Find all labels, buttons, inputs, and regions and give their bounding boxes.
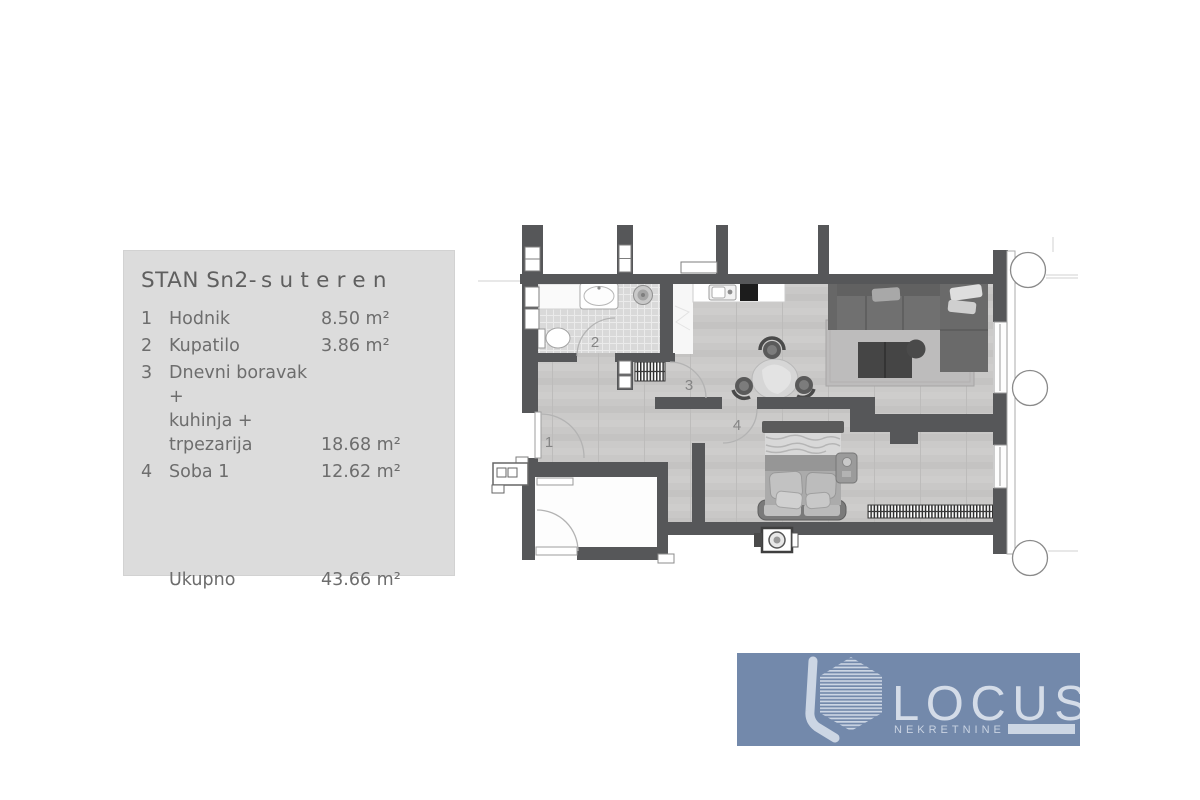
window-ledge-top	[681, 262, 717, 273]
shaft-box	[619, 376, 631, 388]
logo: LOCUS NEKRETNINE	[737, 653, 1080, 746]
boiler-tab-right	[792, 533, 798, 547]
nightstand-item	[842, 471, 851, 477]
chair-cushion	[799, 380, 809, 390]
meter-cell	[497, 468, 506, 477]
column-circle	[1013, 541, 1048, 576]
entrance-door-leaf	[535, 412, 541, 458]
wall-tv-notch	[890, 432, 918, 444]
label-bathroom: 2	[591, 334, 599, 351]
wall-notch	[516, 457, 528, 463]
chair-cushion	[739, 381, 749, 391]
boiler-tab-left	[754, 533, 762, 547]
shaft-box	[619, 361, 631, 374]
sofa-pillow	[872, 287, 901, 302]
wall-stub-c	[818, 225, 829, 278]
wall-end-tab	[658, 554, 674, 563]
chair-cushion	[767, 345, 777, 355]
radiator-bedroom	[868, 505, 994, 518]
logo-underline-bar	[1008, 724, 1075, 734]
wall-bath-south-left	[535, 353, 577, 362]
wall-top	[520, 274, 1008, 284]
shaft-box	[525, 287, 539, 307]
pedestal-sink-drain	[641, 293, 645, 297]
window-sill-column	[1007, 251, 1015, 554]
storage-shelf	[537, 478, 573, 485]
label-hallway: 1	[545, 434, 553, 451]
bed-band	[765, 455, 841, 471]
sofa-armrest	[828, 284, 837, 330]
cooktop	[740, 284, 758, 301]
kitchen-faucet	[728, 290, 733, 295]
label-bedroom: 4	[733, 417, 741, 434]
bed-pillow-small	[805, 492, 830, 509]
facade-columns	[1011, 253, 1048, 576]
faucet-dot	[597, 286, 600, 289]
page: STAN Sn2-suteren 1 Hodnik 8.50 m² 2 Kupa…	[0, 0, 1200, 800]
meter-cell	[508, 468, 517, 477]
wall-storage-bottom-right	[577, 547, 668, 560]
shower-area	[539, 284, 582, 309]
bed-pillow-small	[775, 491, 803, 510]
wall-pier-1	[993, 250, 1008, 322]
nightstand-lamp	[843, 458, 852, 467]
storage-door-leaf	[536, 547, 577, 555]
wall-storage-top	[524, 462, 668, 477]
wall-pier-3	[993, 488, 1008, 554]
sofa-seat	[830, 296, 942, 330]
kitchen-sink-bowl	[712, 287, 725, 298]
wall-living-south-left	[655, 397, 722, 409]
toilet-bowl	[546, 328, 570, 348]
wall-pier-2	[993, 393, 1008, 445]
logo-wordmark: LOCUS	[892, 677, 1080, 731]
wall-bedroom-west	[692, 443, 705, 522]
logo-subtitle: NEKRETNINE	[894, 724, 1005, 736]
label-living: 3	[685, 377, 693, 394]
ottoman	[907, 340, 926, 359]
wall-stub-b	[716, 225, 728, 278]
wall-storage-bottom-left	[522, 547, 533, 560]
wall-tv	[850, 414, 1008, 432]
wall-bottom	[657, 522, 1008, 535]
shaft-box	[525, 309, 539, 329]
radiator-hallway	[635, 362, 665, 381]
context-line	[1046, 275, 1078, 278]
boiler-dot	[774, 537, 781, 544]
toilet-tank	[538, 329, 545, 348]
kitchen-white-floor	[672, 284, 693, 354]
meter-sub-box	[492, 485, 504, 493]
wall-storage-right	[657, 462, 668, 560]
kitchen-counter	[693, 283, 785, 302]
column-circle	[1013, 371, 1048, 406]
storage-room-floor	[535, 477, 657, 547]
column-circle	[1011, 253, 1046, 288]
bed-headboard	[762, 421, 844, 433]
wall-kitchen-west	[660, 278, 673, 362]
